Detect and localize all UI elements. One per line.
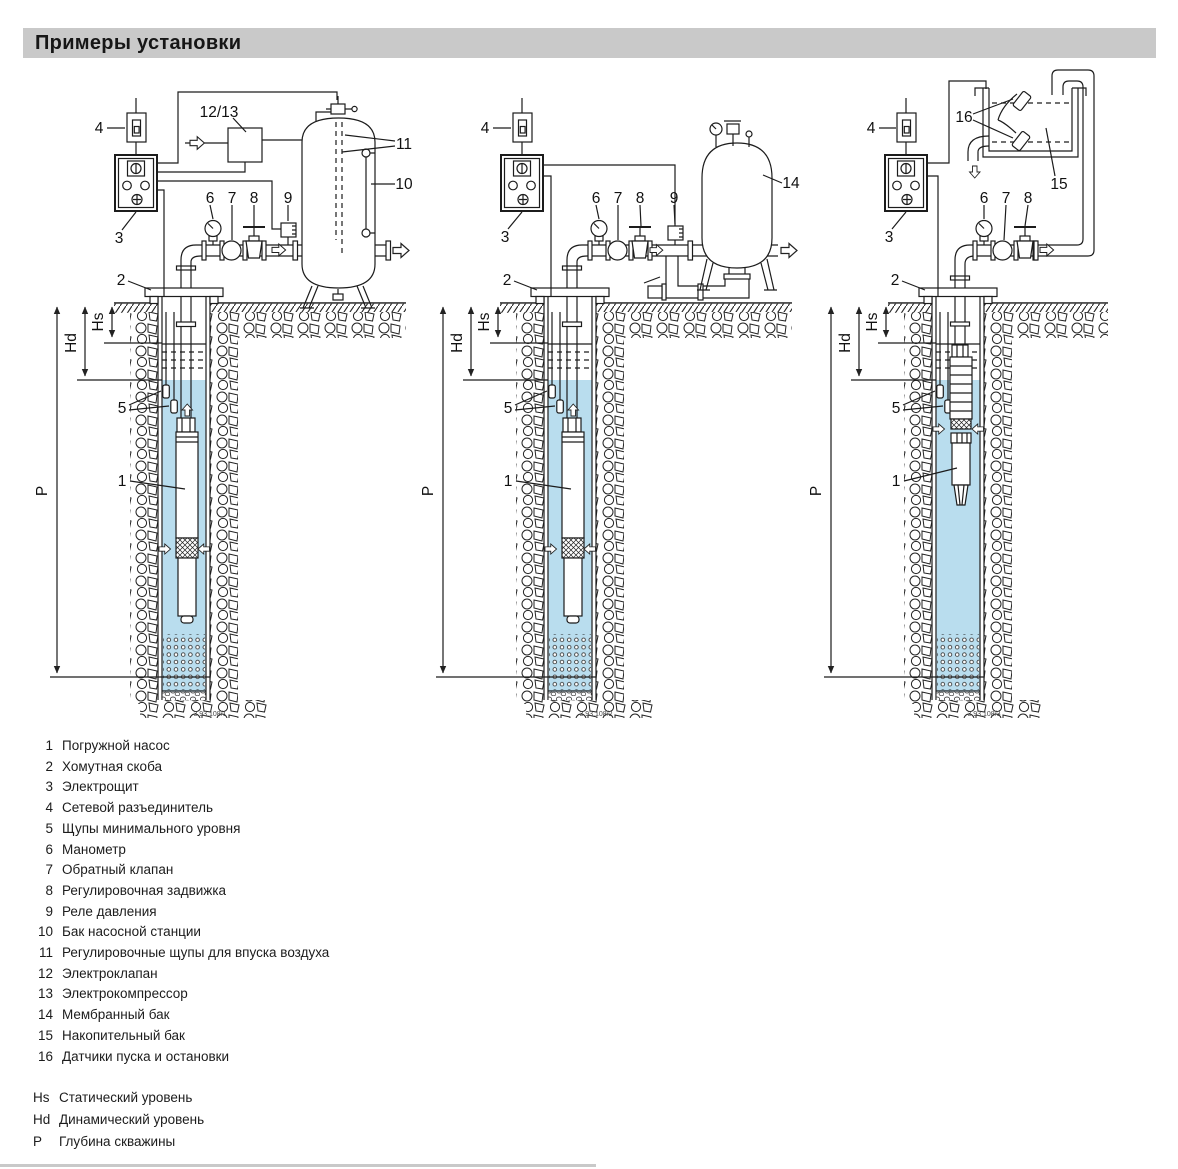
legend-item: 13Электрокомпрессор <box>33 984 329 1005</box>
diagram-pump-station-tank: 4 12/13 11 10 3 6 7 8 9 2 5 1 Hs Hd P 3.… <box>34 92 413 718</box>
manual-page: Примеры установки <box>0 0 1178 1169</box>
callout-6: 6 <box>206 190 215 207</box>
callout-4: 4 <box>481 120 490 137</box>
callout-4: 4 <box>867 120 876 137</box>
pump-station-tank <box>302 118 375 288</box>
legend-item: 4Сетевой разъединитель <box>33 798 329 819</box>
bottom-divider <box>0 1164 596 1167</box>
callout-4: 4 <box>95 120 104 137</box>
callout-15: 15 <box>1050 176 1067 193</box>
callout-6: 6 <box>592 190 601 207</box>
legend-item: 3Электрощит <box>33 777 329 798</box>
callout-7: 7 <box>614 190 623 207</box>
callout-5: 5 <box>118 400 127 417</box>
membrane-tank <box>702 143 772 268</box>
callout-8: 8 <box>1024 190 1033 207</box>
callout-6: 6 <box>980 190 989 207</box>
dim-p: P <box>808 486 825 496</box>
level-item: HsСтатический уровень <box>33 1087 204 1109</box>
legend-item: 5Щупы минимального уровня <box>33 819 329 840</box>
callout-2: 2 <box>117 272 126 289</box>
callout-3: 3 <box>501 229 510 246</box>
legend-item: 6Манометр <box>33 840 329 861</box>
diagram-membrane-tank: 4 3 6 7 8 9 14 2 5 1 Hs Hd P 3.93.108/2 <box>420 98 800 718</box>
drawing-number: 3.93.108/3 <box>967 711 1000 718</box>
legend-item: 15Накопительный бак <box>33 1026 329 1047</box>
legend-item: 12Электроклапан <box>33 964 329 985</box>
callout-5: 5 <box>504 400 513 417</box>
callout-2: 2 <box>503 272 512 289</box>
diagram-storage-tank: 4 3 6 7 8 15 16 2 5 1 Hs Hd P 3.93.108/3 <box>808 70 1178 718</box>
legend-item: 9Реле давления <box>33 902 329 923</box>
dim-hs: Hs <box>90 312 107 331</box>
callout-11: 11 <box>396 136 412 153</box>
drawing-number: 3.93.108/2 <box>579 711 612 718</box>
callout-8: 8 <box>636 190 645 207</box>
callout-7: 7 <box>1002 190 1011 207</box>
drawing-number: 3.93.108/1 <box>193 711 226 718</box>
callout-12-13: 12/13 <box>200 104 239 121</box>
legend-item: 1Погружной насос <box>33 736 329 757</box>
legend-item: 10Бак насосной станции <box>33 922 329 943</box>
safety-valve <box>648 286 662 298</box>
dim-p: P <box>34 486 51 496</box>
level-item: HdДинамический уровень <box>33 1109 204 1131</box>
callout-10: 10 <box>395 176 413 193</box>
level-item: PГлубина скважины <box>33 1131 204 1153</box>
callout-3: 3 <box>115 230 124 247</box>
callout-9: 9 <box>284 190 293 207</box>
legend-item: 8Регулировочная задвижка <box>33 881 329 902</box>
callout-1: 1 <box>504 473 513 490</box>
legend: 1Погружной насос 2Хомутная скоба 3Электр… <box>33 736 329 1067</box>
dim-hd: Hd <box>837 333 854 353</box>
callout-1: 1 <box>892 473 901 490</box>
legend-item: 14Мембранный бак <box>33 1005 329 1026</box>
callout-1: 1 <box>118 473 127 490</box>
legend-item: 7Обратный клапан <box>33 860 329 881</box>
callout-16: 16 <box>955 109 972 126</box>
callout-2: 2 <box>891 272 900 289</box>
dim-hs: Hs <box>476 312 493 331</box>
legend-item: 2Хомутная скоба <box>33 757 329 778</box>
solenoid-compressor-box <box>228 128 262 162</box>
legend-item: 16Датчики пуска и остановки <box>33 1047 329 1068</box>
dim-hd: Hd <box>63 333 80 353</box>
callout-9: 9 <box>670 190 679 207</box>
callout-7: 7 <box>228 190 237 207</box>
dim-hd: Hd <box>449 333 466 353</box>
callout-3: 3 <box>885 229 894 246</box>
legend-item: 11Регулировочные щупы для впуска воздуха <box>33 943 329 964</box>
callout-5: 5 <box>892 400 901 417</box>
callout-14: 14 <box>782 175 800 192</box>
callout-8: 8 <box>250 190 259 207</box>
level-abbreviations: HsСтатический уровень HdДинамический уро… <box>33 1087 204 1153</box>
installation-diagrams: 4 12/13 11 10 3 6 7 8 9 2 5 1 Hs Hd P 3.… <box>0 0 1178 730</box>
dim-hs: Hs <box>864 312 881 331</box>
dim-p: P <box>420 486 437 496</box>
